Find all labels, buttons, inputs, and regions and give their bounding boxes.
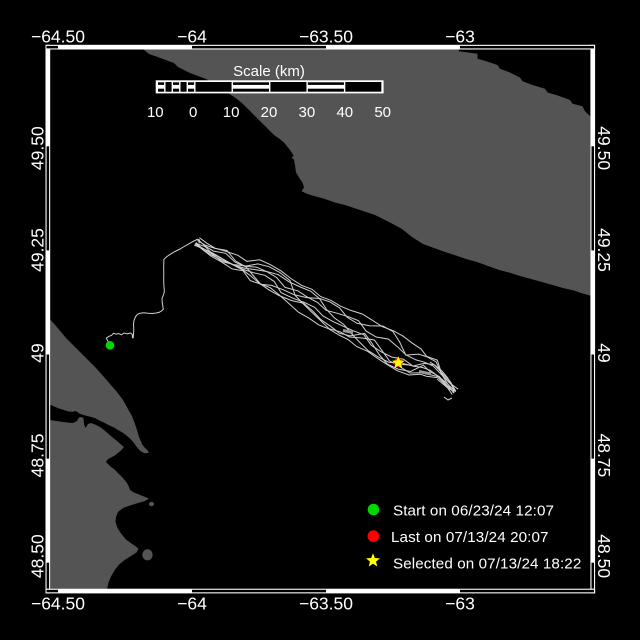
svg-text:48.75: 48.75 <box>594 434 614 478</box>
svg-text:−63: −63 <box>445 594 475 614</box>
svg-text:−64: −64 <box>177 27 207 47</box>
svg-text:48.50: 48.50 <box>594 534 614 578</box>
svg-text:49.50: 49.50 <box>594 126 614 170</box>
svg-text:−63: −63 <box>445 27 475 47</box>
svg-text:49: 49 <box>28 343 48 362</box>
svg-text:10: 10 <box>223 104 240 121</box>
svg-text:50: 50 <box>374 104 391 121</box>
svg-text:−64.50: −64.50 <box>31 27 85 47</box>
svg-text:49.50: 49.50 <box>28 126 48 170</box>
svg-text:49: 49 <box>594 343 614 362</box>
svg-text:−63.50: −63.50 <box>299 27 353 47</box>
svg-text:Selected on 07/13/24 18:22: Selected on 07/13/24 18:22 <box>393 556 581 573</box>
svg-text:Last on 07/13/24 20:07: Last on 07/13/24 20:07 <box>391 529 549 546</box>
svg-text:10: 10 <box>147 104 164 121</box>
svg-text:−64: −64 <box>177 594 207 614</box>
svg-text:−64.50: −64.50 <box>31 594 85 614</box>
svg-text:20: 20 <box>261 104 278 121</box>
svg-text:48.50: 48.50 <box>28 534 48 578</box>
svg-text:−63.50: −63.50 <box>299 594 353 614</box>
svg-text:48.75: 48.75 <box>28 434 48 478</box>
svg-text:40: 40 <box>336 104 353 121</box>
svg-text:Start on 06/23/24 12:07: Start on 06/23/24 12:07 <box>393 503 554 520</box>
svg-text:0: 0 <box>189 104 197 121</box>
svg-text:30: 30 <box>299 104 316 121</box>
svg-text:49.25: 49.25 <box>594 228 614 272</box>
svg-text:Scale (km): Scale (km) <box>233 63 305 80</box>
svg-text:49.25: 49.25 <box>28 228 48 272</box>
